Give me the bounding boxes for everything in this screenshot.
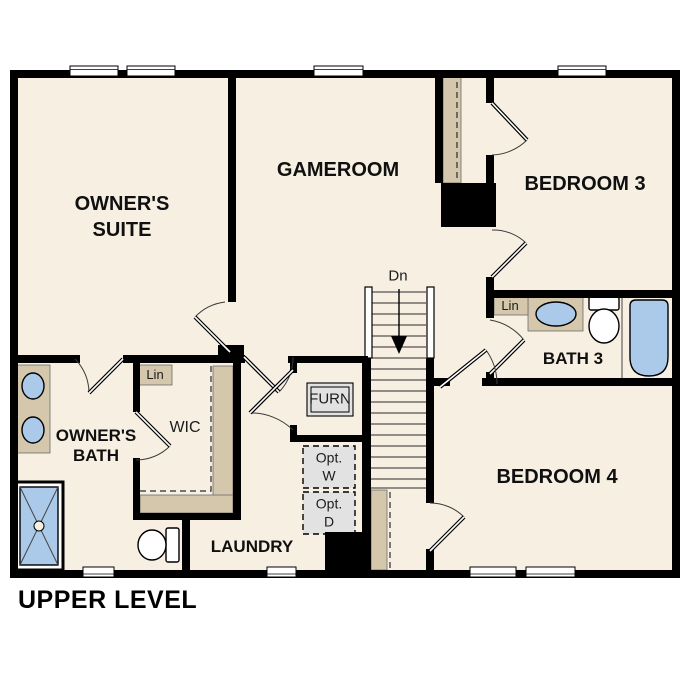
- chase: [441, 183, 496, 227]
- stair-rail-right: [427, 287, 434, 358]
- linen-label-wic: Lin: [146, 367, 163, 383]
- room-label-bath3: BATH 3: [543, 349, 603, 369]
- floorplan-drawing: [0, 0, 687, 687]
- floorplan-upper-level: OWNER'S SUITE GAMEROOM BEDROOM 3 BATH 3 …: [0, 0, 687, 687]
- room-label-bedroom4: BEDROOM 4: [496, 464, 617, 490]
- bath3-toilet: [589, 297, 619, 343]
- room-label-gameroom: GAMEROOM: [277, 157, 399, 183]
- room-label-owners-bath: OWNER'S BATH: [56, 426, 137, 466]
- room-label-laundry: LAUNDRY: [211, 537, 293, 557]
- opt-washer-label: Opt. W: [316, 450, 342, 485]
- bath3-sink: [536, 302, 576, 326]
- shower: [15, 482, 63, 570]
- room-label-wic: WIC: [169, 419, 200, 437]
- room-label-bedroom3: BEDROOM 3: [524, 171, 645, 197]
- stair-rail-left: [365, 287, 372, 358]
- plan-title: UPPER LEVEL: [18, 586, 197, 615]
- room-label-owners-suite: OWNER'S SUITE: [75, 191, 170, 243]
- owners-bath-toilet: [138, 528, 179, 562]
- linen-label-bath3: Lin: [501, 298, 518, 314]
- furnace-label: FURN: [309, 391, 351, 408]
- opt-dryer-label: Opt. D: [316, 496, 342, 531]
- stairs-down-label: Dn: [388, 268, 407, 285]
